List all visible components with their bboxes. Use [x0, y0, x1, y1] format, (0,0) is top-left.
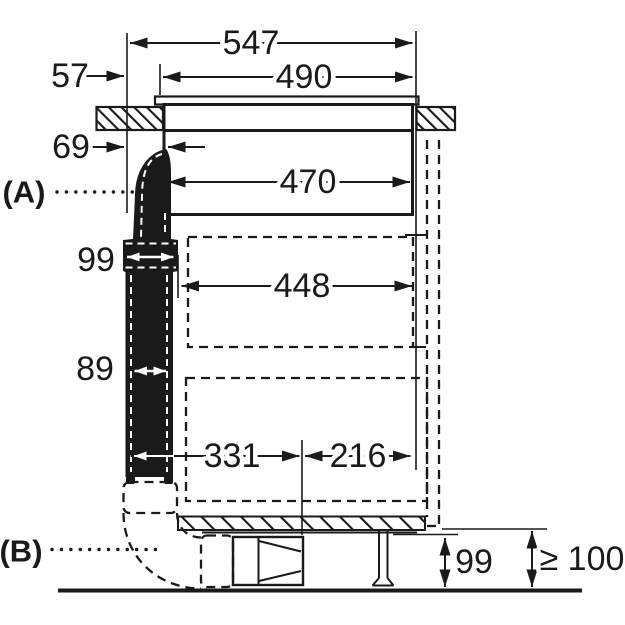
dim-label-span-right: 216	[330, 437, 387, 475]
dim-label-total: 547	[223, 24, 280, 62]
duct-coupler-outline	[124, 482, 178, 513]
dim-label-overhang: 57	[51, 57, 89, 95]
elbow-outlet-outline	[201, 536, 233, 588]
dim-label-duct: 89	[76, 350, 114, 388]
installation-diagram: 547 490 57 69 470 448 99 89 331 216 99 ≥…	[0, 0, 625, 625]
elbow-duct-hidden	[124, 482, 234, 589]
technical-drawing-canvas: 547 490 57 69 470 448 99 89 331 216 99 ≥…	[0, 0, 625, 625]
exhaust-duct	[123, 149, 178, 484]
worktop-right-section	[417, 107, 456, 130]
dim-label-connector: 99	[77, 241, 115, 279]
dim-label-clearance: ≥ 100	[540, 540, 625, 578]
support-leg	[373, 530, 394, 586]
callout-b-label: (B)	[0, 534, 43, 569]
dim-label-inner: 470	[280, 163, 337, 201]
dim-label-gap: 69	[52, 128, 90, 166]
callout-a-label: (A)	[2, 175, 45, 210]
dim-label-cutout: 490	[276, 58, 333, 96]
base-area	[58, 517, 582, 591]
dim-label-recess: 448	[274, 267, 331, 305]
dim-label-span-left: 331	[204, 437, 261, 475]
worktop-left-section	[97, 107, 164, 130]
blower-unit	[233, 537, 303, 585]
dim-label-plinth: 99	[455, 543, 493, 581]
